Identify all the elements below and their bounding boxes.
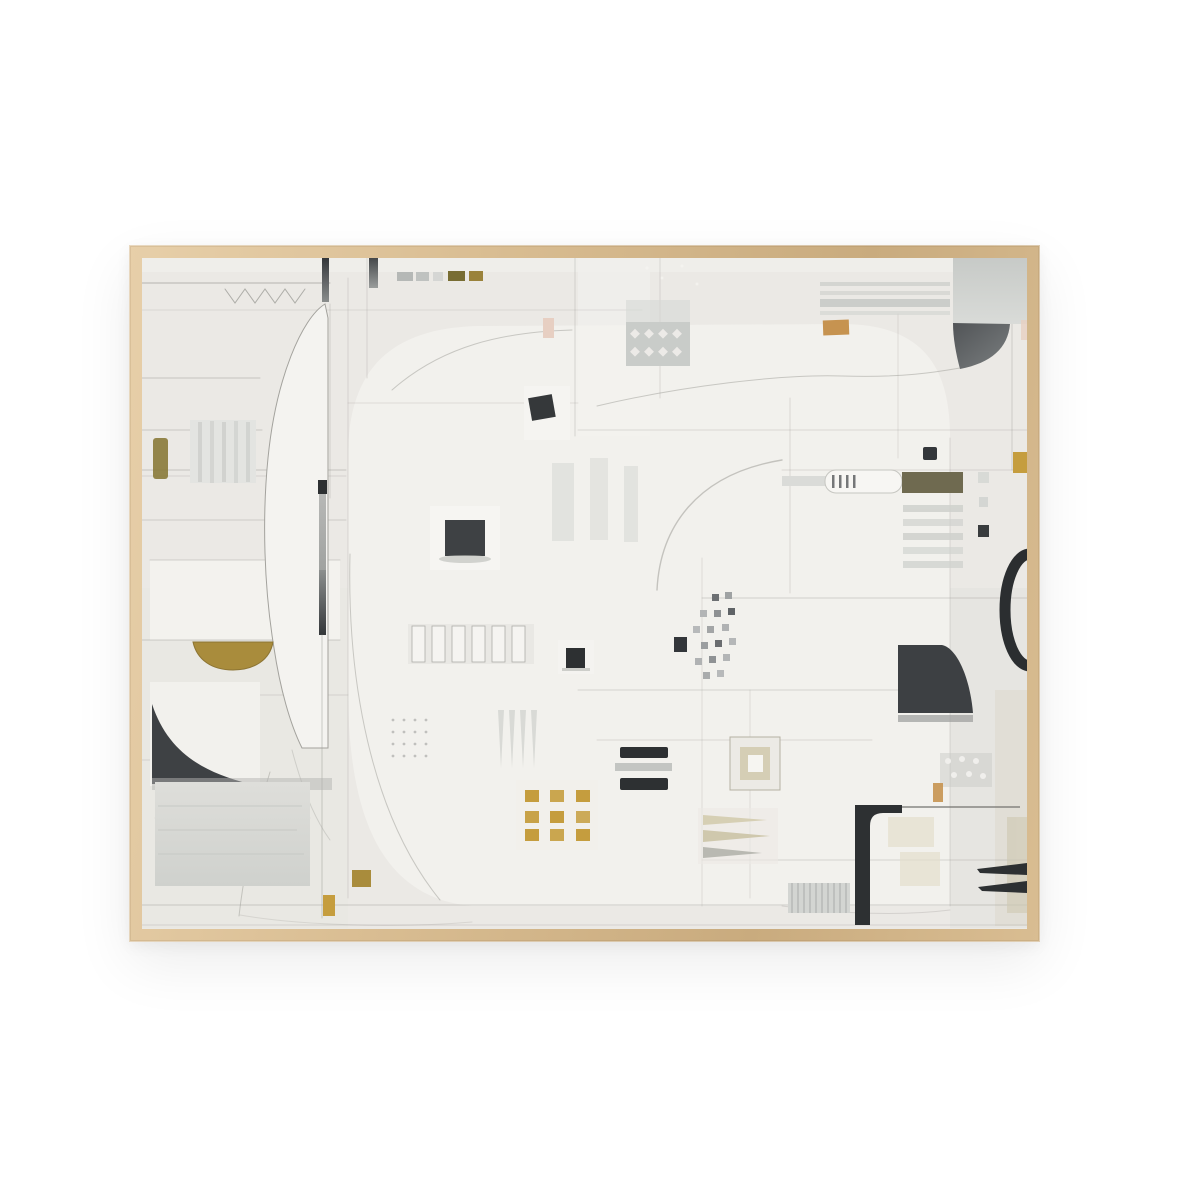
gray-stripe-block: [190, 420, 256, 483]
gold-square-grid: [516, 780, 598, 850]
polka-dot-patch: [626, 300, 690, 366]
tan-chip: [823, 320, 850, 336]
tan-stub-small: [933, 783, 943, 802]
large-charcoal-square: [430, 506, 500, 570]
gold-chip-edge: [1013, 452, 1027, 473]
product-photo-background: [0, 0, 1200, 1200]
gray-wash-block: [155, 782, 310, 886]
olive-stub: [153, 438, 168, 479]
dark-vertical-bar-tall: [322, 258, 329, 302]
soft-gray-swaths: [552, 458, 638, 542]
black-double-bars: [615, 747, 672, 790]
dot-texture: [940, 753, 992, 787]
blush-strip: [543, 318, 554, 338]
top-right-gray-block: [953, 258, 1027, 324]
blush-strip-edge: [1021, 320, 1027, 340]
small-black-square-a: [558, 640, 594, 674]
comb-pattern: [408, 624, 534, 664]
small-black-square-b: [674, 637, 687, 652]
square-in-square: [730, 737, 780, 790]
picture-frame: [129, 245, 1040, 942]
abstract-painting: [142, 258, 1027, 929]
pale-square-b: [979, 497, 988, 507]
gold-small-stub: [323, 895, 335, 916]
hatch-stripe-block: [788, 883, 850, 913]
paint-chip-row: [397, 271, 483, 281]
backgammon-triangles: [698, 808, 778, 864]
gold-small-rect: [352, 870, 371, 887]
small-dark-square-right: [923, 447, 937, 460]
dark-vertical-bar-short: [369, 258, 378, 288]
dark-square-c: [978, 525, 989, 537]
tilted-black-square: [524, 386, 570, 440]
painting-canvas: [142, 258, 1027, 929]
pale-square-a: [978, 472, 989, 483]
